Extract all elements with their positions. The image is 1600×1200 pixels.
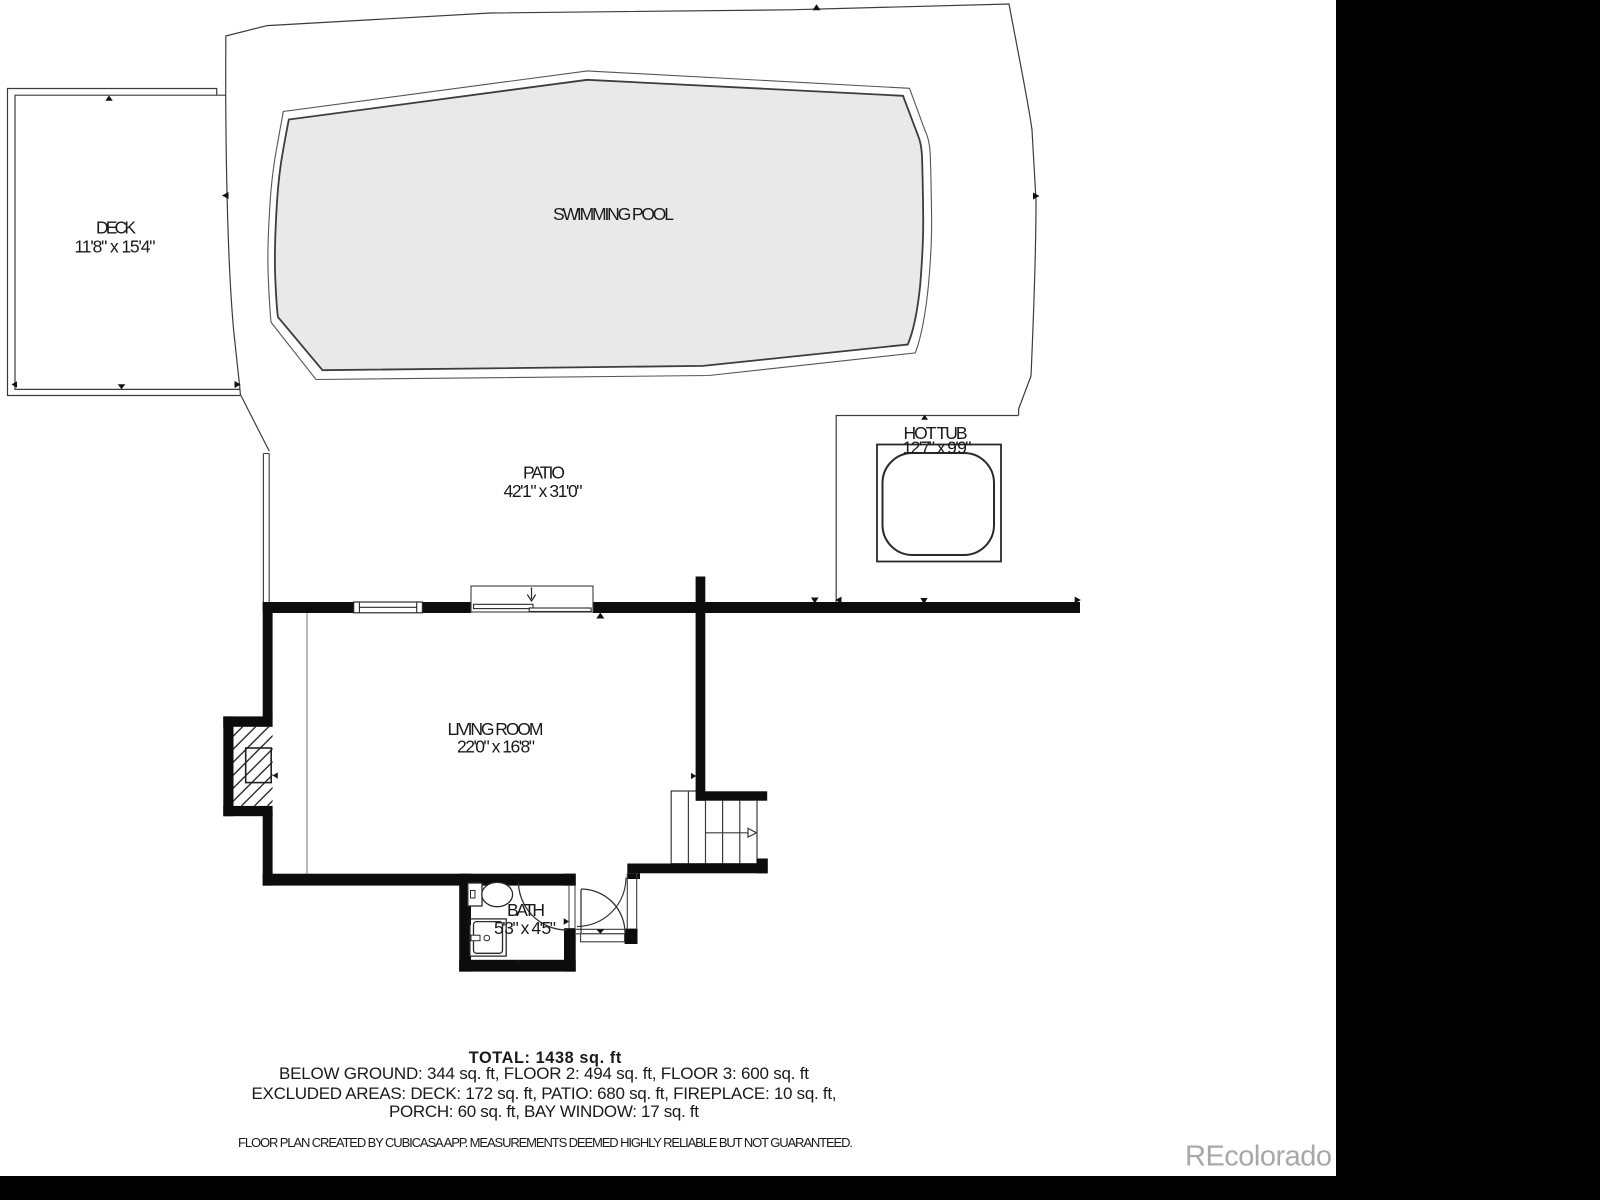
svg-text:BATH: BATH <box>507 900 545 920</box>
svg-text:PORCH: 60 sq. ft, BAY WINDOW:: PORCH: 60 sq. ft, BAY WINDOW: 17 sq. ft <box>389 1102 699 1121</box>
svg-text:42'1" x 31'0": 42'1" x 31'0" <box>504 481 583 501</box>
svg-text:5'3" x 4'5": 5'3" x 4'5" <box>494 918 556 938</box>
svg-text:11'8" x 15'4": 11'8" x 15'4" <box>75 237 156 257</box>
svg-text:PATIO: PATIO <box>523 462 565 482</box>
svg-text:EXCLUDED AREAS: DECK: 172 sq.: EXCLUDED AREAS: DECK: 172 sq. ft, PATIO:… <box>252 1084 837 1103</box>
svg-text:FLOOR PLAN CREATED BY CUBICASA: FLOOR PLAN CREATED BY CUBICASA APP. MEAS… <box>238 1135 853 1150</box>
svg-text:22'0" x 16'8": 22'0" x 16'8" <box>457 737 535 757</box>
svg-text:SWIMMING POOL: SWIMMING POOL <box>553 204 674 224</box>
svg-text:BELOW GROUND: 344 sq. ft, FLOO: BELOW GROUND: 344 sq. ft, FLOOR 2: 494 s… <box>279 1064 809 1083</box>
svg-text:DECK: DECK <box>96 217 136 237</box>
svg-text:12'7" x 9'9": 12'7" x 9'9" <box>903 438 972 458</box>
svg-text:REcolorado: REcolorado <box>1185 1141 1332 1173</box>
